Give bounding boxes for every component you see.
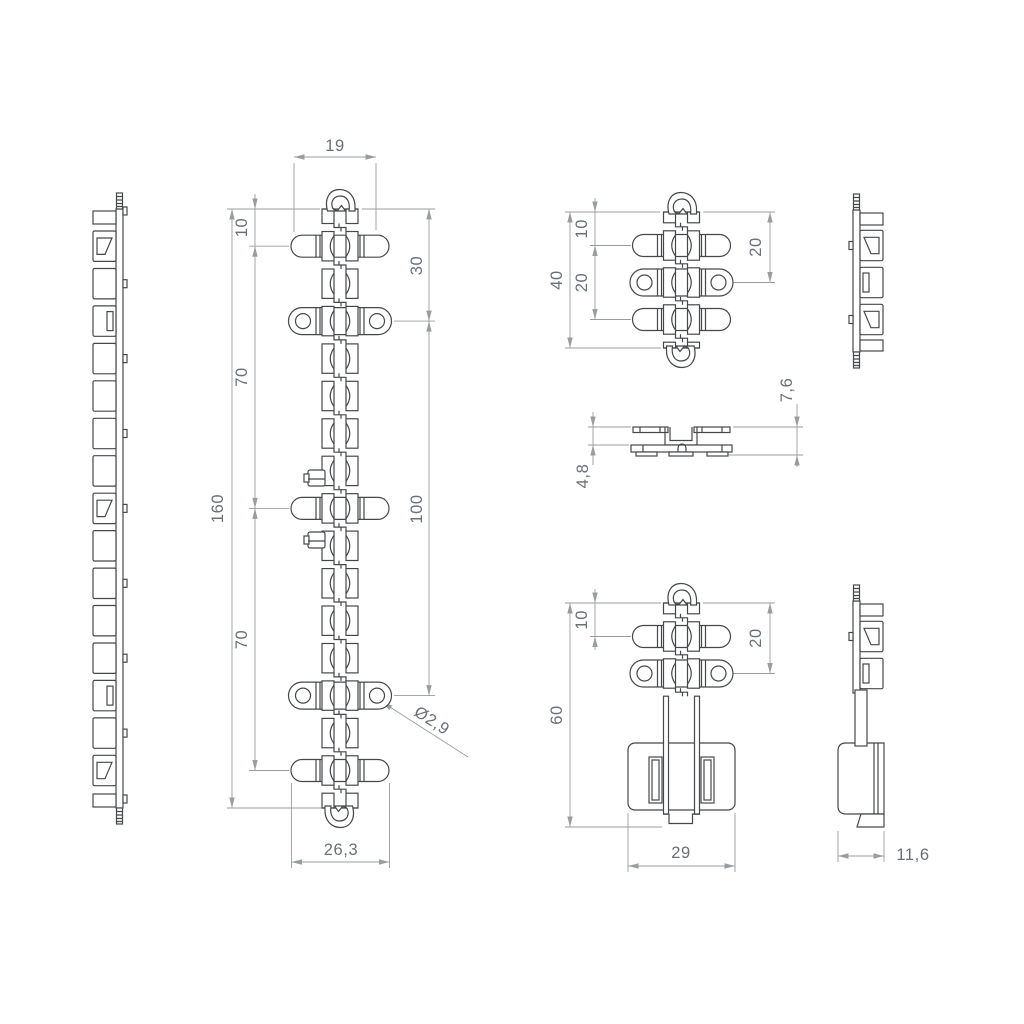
section-view [631,427,732,456]
side-view-60-dims: 11,6 [838,831,930,864]
front-view-160 [289,190,392,828]
front-view-40 [630,193,733,368]
top-hook [668,584,697,606]
dim-label-overall-40: 40 [548,270,566,290]
side-view-60 [838,585,884,827]
dim-label-pitch-upper: 70 [233,367,251,387]
dim-label-height-total: 7,6 [778,378,796,403]
dim-label-ear-span: 100 [408,494,426,523]
dim-label-offset-top: 10 [233,218,251,238]
dim-label-ear-offset: 30 [408,256,426,276]
dim-label-overall-160: 160 [209,494,227,523]
front-view-60 [628,584,735,824]
top-hook [326,190,355,212]
dim-label-offset-top-60: 10 [573,610,591,630]
top-hook [668,193,697,215]
section-view-dims: 4,8 7,6 [574,378,803,489]
technical-drawing: 19 10 70 70 160 30 100 Ø2,9 26,3 [0,0,1024,1024]
bottom-hook [666,346,695,368]
dim-label-ear-offset-40: 20 [747,237,765,257]
bottom-hook [325,806,354,828]
dim-label-height-base: 4,8 [574,464,592,489]
drawing-sheet: 19 10 70 70 160 30 100 Ø2,9 26,3 [0,0,1024,1024]
dim-label-depth: 11,6 [896,846,929,864]
side-view-40 [849,194,883,368]
dim-label-top-width: 19 [325,137,345,155]
dim-label-offset-top-40: 10 [573,219,591,239]
dim-label-overall-60: 60 [548,705,566,725]
side-view-160 [93,193,127,824]
dim-label-ear-offset-60: 20 [747,628,765,648]
dim-label-pitch-lower: 70 [233,630,251,650]
dim-label-bottom-width: 26,3 [324,841,359,859]
dim-label-pitch-40: 20 [573,273,591,293]
dim-label-base-width: 29 [671,844,691,862]
